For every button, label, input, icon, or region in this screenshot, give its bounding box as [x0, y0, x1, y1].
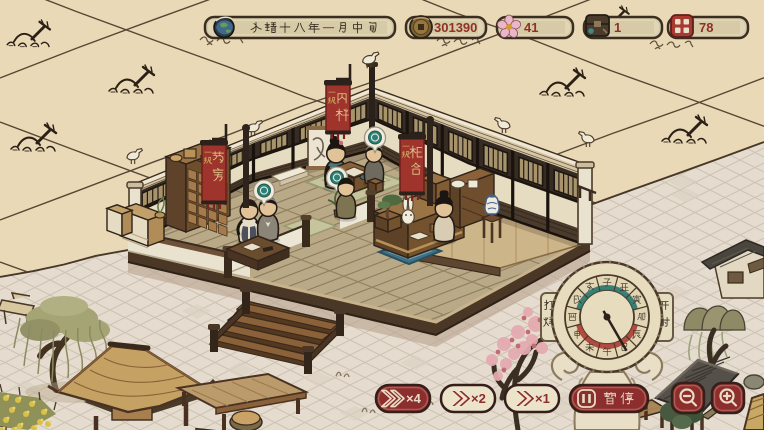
svg-text:78: 78: [699, 20, 713, 35]
svg-text:×1: ×1: [535, 391, 550, 406]
svg-text:×2: ×2: [471, 391, 486, 406]
svg-text:×4: ×4: [406, 391, 422, 406]
svg-text:41: 41: [524, 20, 538, 35]
svg-text:301390: 301390: [434, 20, 477, 35]
svg-text:1: 1: [614, 20, 621, 35]
